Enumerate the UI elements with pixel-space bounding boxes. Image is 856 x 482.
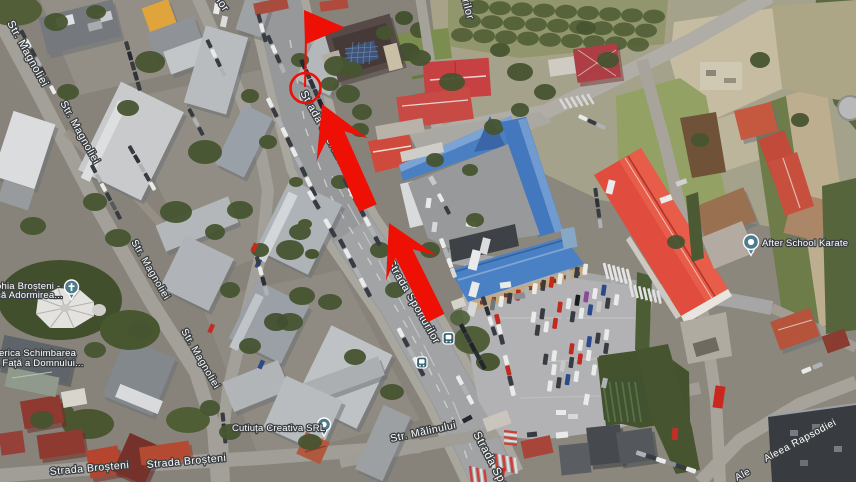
svg-text:After School Karate: After School Karate <box>762 238 848 249</box>
svg-text:Cutiuța Creativa SRL: Cutiuța Creativa SRL <box>232 423 325 434</box>
svg-text:a Față a Domnului...: a Față a Domnului... <box>0 358 84 369</box>
svg-text:că Adormirea...: că Adormirea... <box>0 290 63 301</box>
